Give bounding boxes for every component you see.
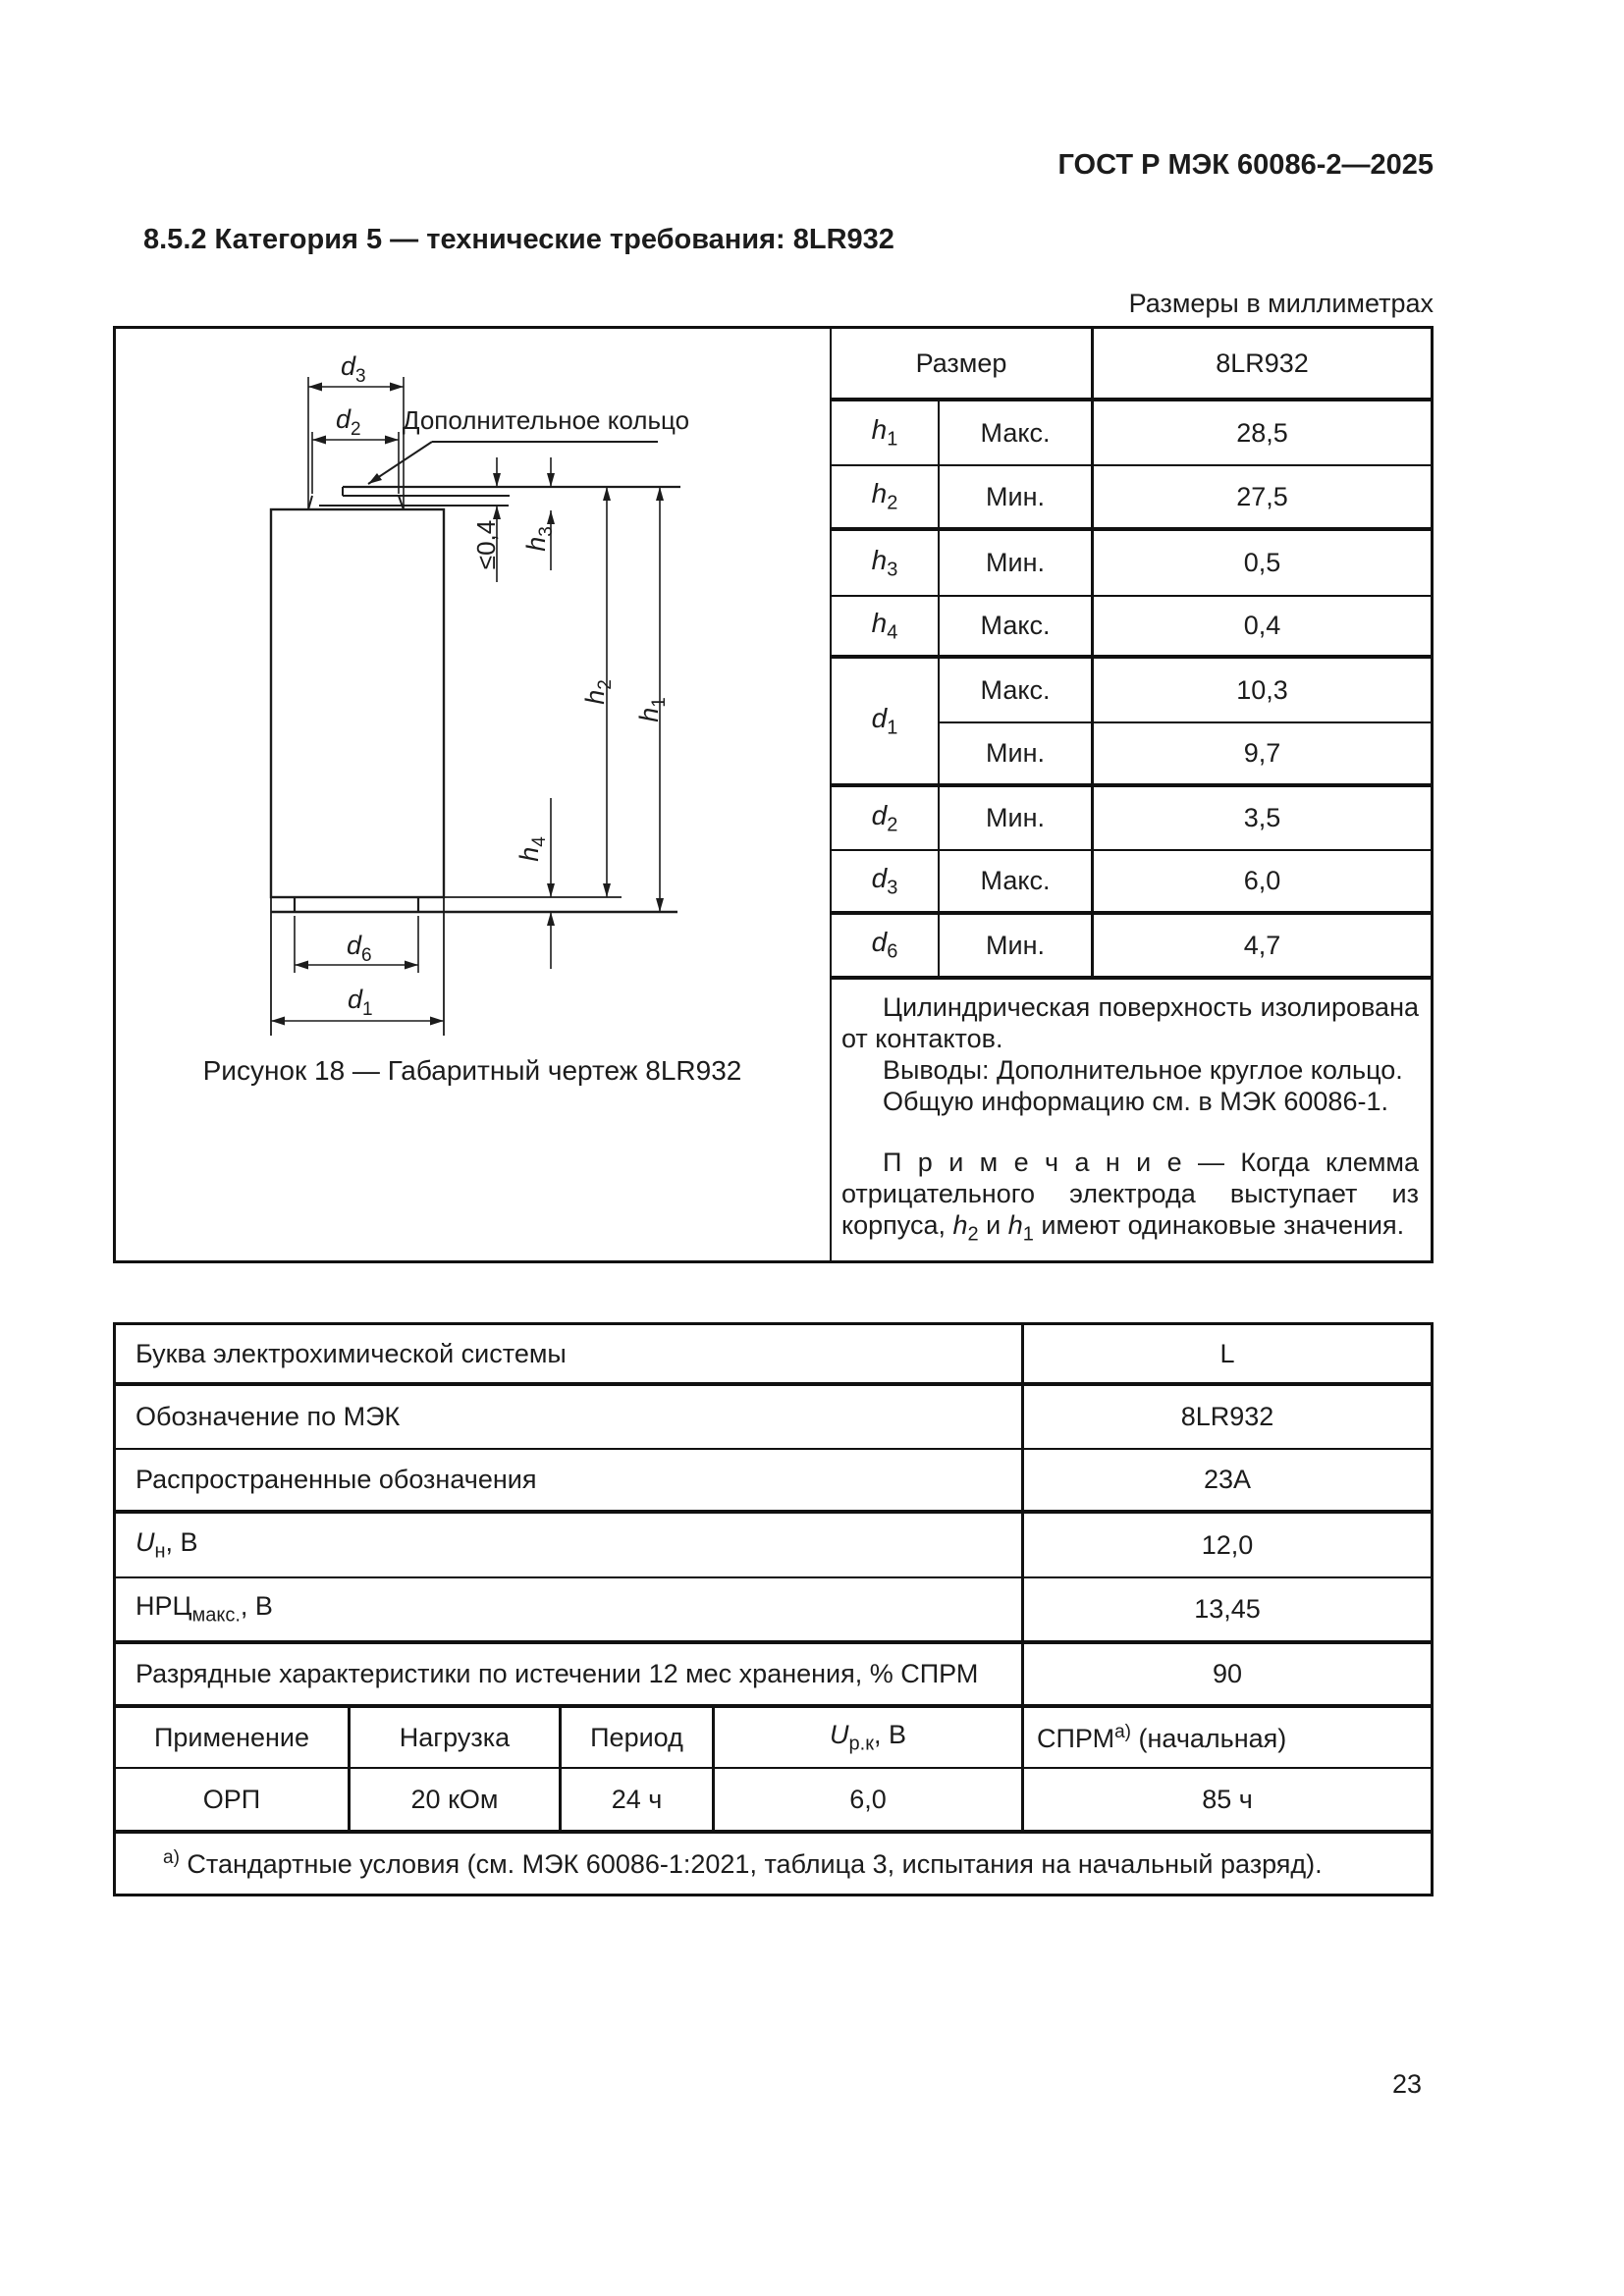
app-header-application: Применение	[116, 1708, 351, 1769]
app-value-endpoint-voltage: 6,0	[715, 1769, 1024, 1834]
dim-limit: Мин.	[940, 531, 1094, 597]
characteristics-table: Буква электрохимической системы L Обозна…	[113, 1322, 1434, 1896]
dim-limit: Макс.	[940, 659, 1094, 723]
notes-block: Цилиндрическая поверхность изолирована о…	[832, 980, 1431, 1260]
dim-limit: Мин.	[940, 723, 1094, 787]
table-footnote: а) Стандартные условия (см. МЭК 60086-1:…	[116, 1834, 1431, 1894]
char-value: 13,45	[1024, 1578, 1431, 1644]
dimension-table: Размер 8LR932 h1 Макс. 28,5 h2 Мин. 27,5…	[832, 329, 1431, 980]
char-value: L	[1024, 1325, 1431, 1386]
dim-header-size: Размер	[832, 329, 1094, 401]
document-page: ГОСТ Р МЭК 60086-2—2025 8.5.2 Категория …	[0, 0, 1624, 2296]
page-number: 23	[1392, 2069, 1422, 2100]
dim-name-h4: h4	[832, 597, 940, 659]
dimension-table-cell: Размер 8LR932 h1 Макс. 28,5 h2 Мин. 27,5…	[830, 329, 1431, 1260]
note-remark: П р и м е ч а н и е — Когда клемма отриц…	[841, 1147, 1419, 1250]
dim-name-h1: h1	[832, 401, 940, 466]
figure-cell: d3 d2 Дополнительное кольцо ≤0,4 h3 h2 h…	[116, 329, 830, 1260]
app-header-period: Период	[562, 1708, 715, 1769]
note-general-info: Общую информацию см. в МЭК 60086-1.	[841, 1086, 1419, 1117]
dim-limit: Макс.	[940, 597, 1094, 659]
dim-label-max04: ≤0,4	[471, 520, 501, 569]
dim-value: 3,5	[1094, 787, 1431, 851]
dim-name-h3: h3	[832, 531, 940, 597]
app-value-application: ОРП	[116, 1769, 351, 1834]
dim-label-d6: d6	[347, 931, 372, 966]
dim-name-h2: h2	[832, 466, 940, 531]
dim-limit: Мин.	[940, 787, 1094, 851]
dim-value: 27,5	[1094, 466, 1431, 531]
char-value: 8LR932	[1024, 1386, 1431, 1450]
figure-caption: Рисунок 18 — Габаритный чертеж 8LR932	[203, 1055, 742, 1086]
section-heading: 8.5.2 Категория 5 — технические требован…	[143, 224, 894, 256]
dim-label-h4: h4	[514, 836, 550, 862]
dim-value: 28,5	[1094, 401, 1431, 466]
app-header-load: Нагрузка	[351, 1708, 562, 1769]
battery-dimension-drawing: d3 d2 Дополнительное кольцо ≤0,4 h3 h2 h…	[116, 329, 830, 1260]
dim-limit: Мин.	[940, 915, 1094, 980]
spec-box: d3 d2 Дополнительное кольцо ≤0,4 h3 h2 h…	[113, 326, 1434, 1263]
char-label: Буква электрохимической системы	[116, 1325, 1024, 1386]
dim-label-h1: h1	[634, 697, 670, 722]
dim-limit: Мин.	[940, 466, 1094, 531]
app-value-load: 20 кОм	[351, 1769, 562, 1834]
app-header-endpoint-voltage: Uр.к, В	[715, 1708, 1024, 1769]
dim-value: 0,4	[1094, 597, 1431, 659]
app-value-msd: 85 ч	[1024, 1769, 1431, 1834]
dim-name-d1: d1	[832, 659, 940, 787]
note-terminals: Выводы: Дополнительное круглое кольцо.	[841, 1054, 1419, 1086]
note-surface: Цилиндрическая поверхность изолирована о…	[841, 991, 1419, 1054]
char-label-nominal-voltage: Uн, В	[116, 1514, 1024, 1578]
dim-label-d1: d1	[348, 985, 373, 1020]
app-header-msd: СПРМа) (начальная)	[1024, 1708, 1431, 1769]
leader-label: Дополнительное кольцо	[403, 405, 689, 435]
char-value: 90	[1024, 1644, 1431, 1708]
char-label: Разрядные характеристики по истечении 12…	[116, 1644, 1024, 1708]
units-note: Размеры в миллиметрах	[1129, 289, 1434, 319]
dim-name-d2: d2	[832, 787, 940, 851]
dim-name-d6: d6	[832, 915, 940, 980]
dim-label-h2: h2	[580, 679, 616, 705]
char-value: 12,0	[1024, 1514, 1431, 1578]
dim-name-d3: d3	[832, 851, 940, 915]
document-code: ГОСТ Р МЭК 60086-2—2025	[1058, 149, 1435, 182]
dim-limit: Макс.	[940, 851, 1094, 915]
dim-header-type: 8LR932	[1094, 329, 1431, 401]
dim-value: 9,7	[1094, 723, 1431, 787]
dim-value: 0,5	[1094, 531, 1431, 597]
char-label: Обозначение по МЭК	[116, 1386, 1024, 1450]
dim-label-d2: d2	[336, 404, 361, 440]
dim-value: 4,7	[1094, 915, 1431, 980]
dim-label-d3: d3	[341, 351, 366, 387]
app-value-period: 24 ч	[562, 1769, 715, 1834]
char-label-ocv-max: НРЦмакс., В	[116, 1578, 1024, 1644]
dim-limit: Макс.	[940, 401, 1094, 466]
char-value: 23А	[1024, 1450, 1431, 1514]
char-label: Распространенные обозначения	[116, 1450, 1024, 1514]
dim-value: 10,3	[1094, 659, 1431, 723]
dim-value: 6,0	[1094, 851, 1431, 915]
